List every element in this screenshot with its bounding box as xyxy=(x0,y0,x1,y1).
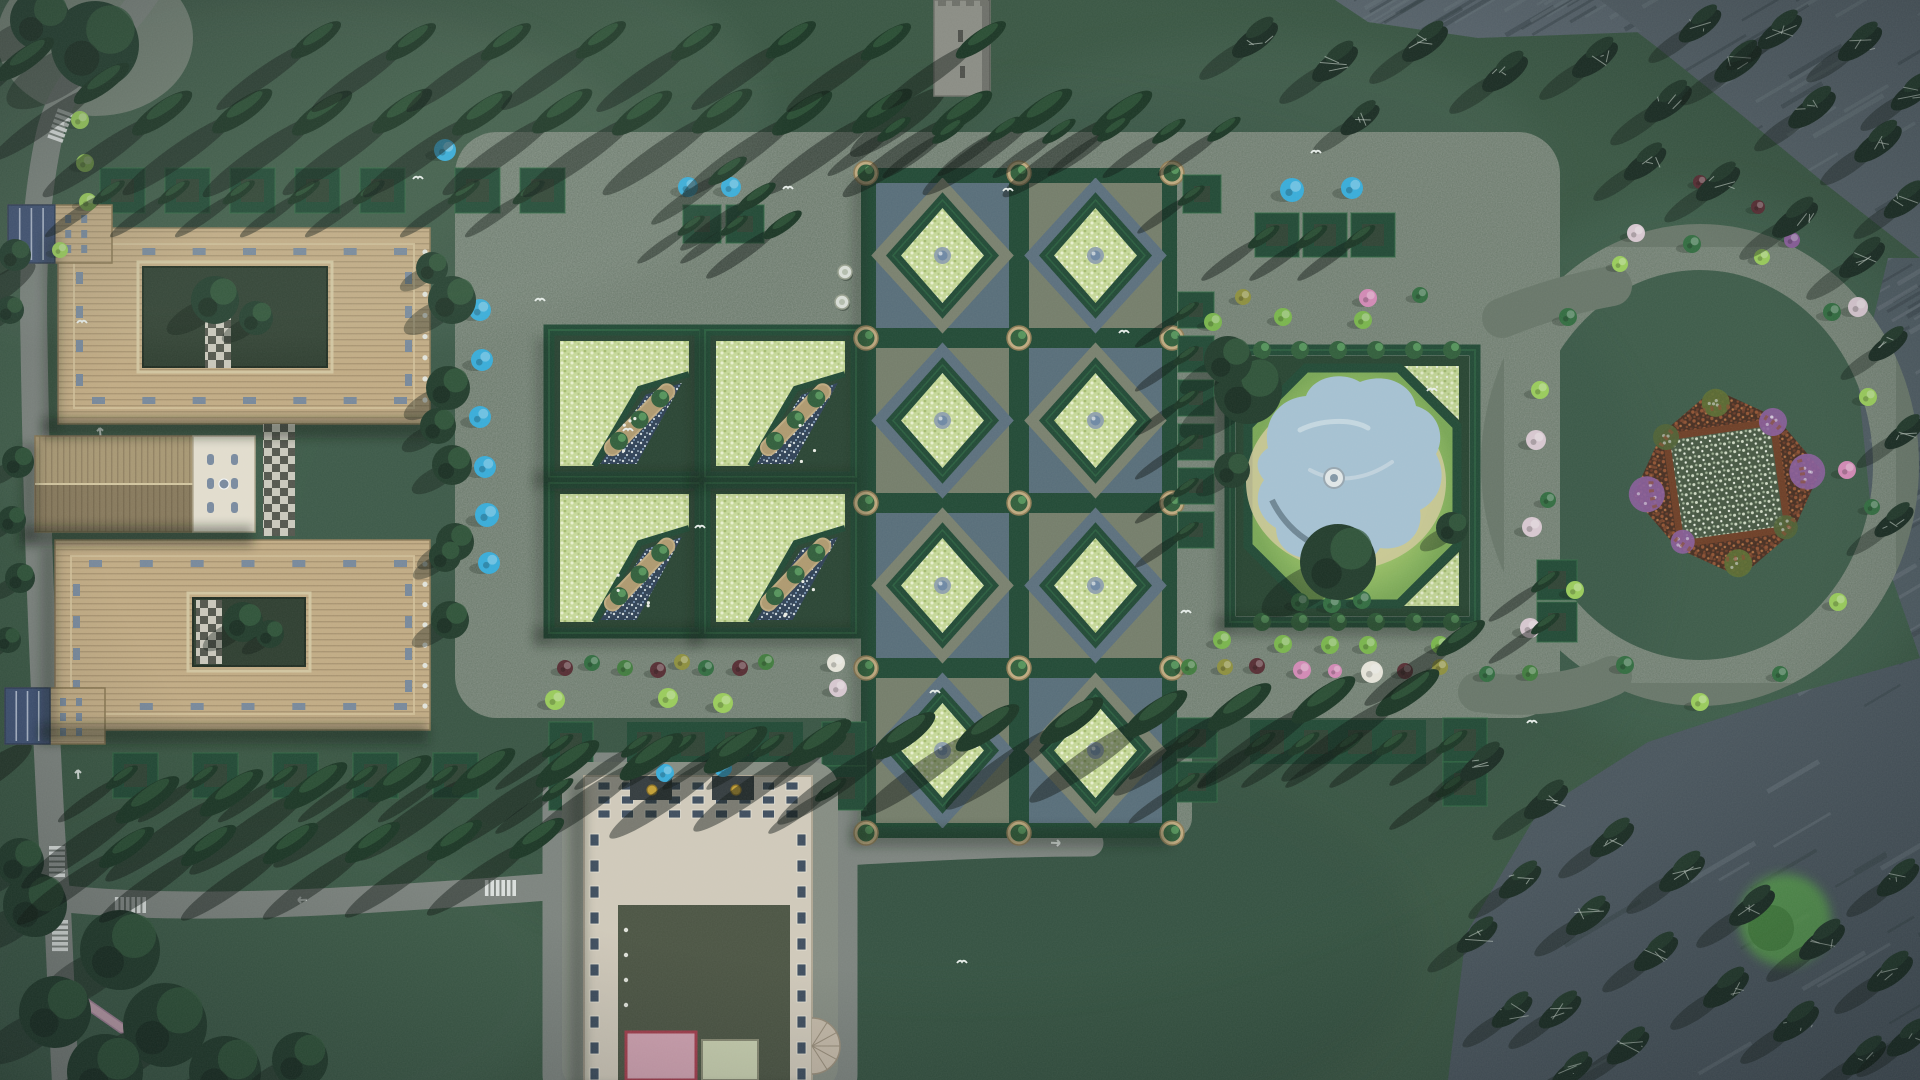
game-viewport[interactable] xyxy=(0,0,1920,1080)
garden-aerial-view xyxy=(0,0,1920,1080)
atmosphere-overlay xyxy=(0,0,1920,1080)
